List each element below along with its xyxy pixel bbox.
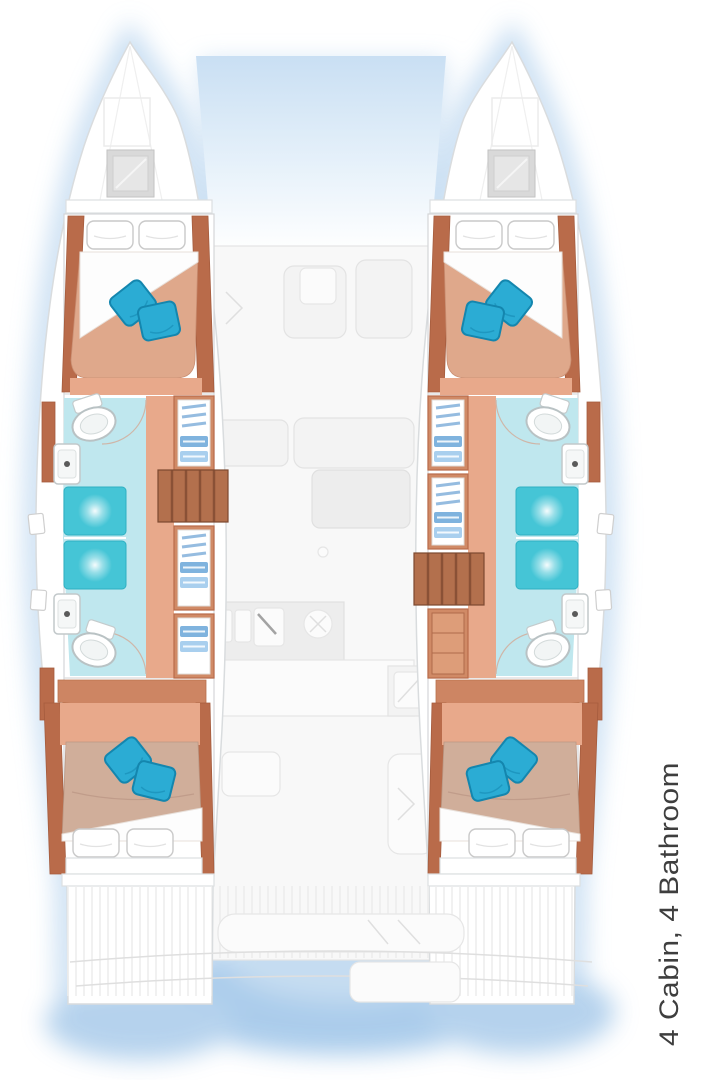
pillow-icon xyxy=(73,829,119,857)
bed-foot xyxy=(440,858,576,874)
deck-hatch-icon xyxy=(488,150,535,197)
hull-window xyxy=(30,590,46,611)
cockpit-bench-icon xyxy=(218,914,464,952)
shower-icon xyxy=(516,541,578,589)
stove-icon xyxy=(254,608,284,646)
bed-foot xyxy=(66,858,202,874)
corridor xyxy=(468,396,496,678)
corridor xyxy=(146,396,174,678)
washbasin-icon xyxy=(562,444,588,484)
washbasin-icon xyxy=(562,594,588,634)
pillow-icon xyxy=(139,221,185,249)
deck-band xyxy=(62,874,214,886)
cabin-floor xyxy=(70,378,202,395)
deck-band xyxy=(66,200,212,213)
forward-cockpit-table xyxy=(300,268,336,304)
bridge-deck xyxy=(212,246,434,960)
hull-window xyxy=(595,589,611,610)
pillow-icon xyxy=(523,829,569,857)
hull-window xyxy=(28,513,45,534)
mast-step xyxy=(318,547,328,557)
vanity-trim xyxy=(42,402,55,482)
vanity-trim xyxy=(587,402,600,482)
pillow-icon xyxy=(469,829,515,857)
galley-counter-front xyxy=(214,660,414,716)
plan-caption: 4 Cabin, 4 Bathroom xyxy=(654,762,684,1046)
pillow-icon xyxy=(127,829,173,857)
cabin-floor xyxy=(440,378,572,395)
foredeck-trampoline xyxy=(196,56,446,252)
deck-hatch-icon xyxy=(107,150,154,197)
swim-platform xyxy=(350,962,460,1002)
stairs-icon xyxy=(414,553,484,605)
shower-icon xyxy=(64,541,126,589)
washbasin-icon xyxy=(54,444,80,484)
hull-window xyxy=(597,513,614,534)
decor-pillow-icon xyxy=(137,300,181,341)
decor-pillow-icon xyxy=(461,300,505,341)
stairs-icon xyxy=(158,470,228,522)
pillow-icon xyxy=(87,221,133,249)
washbasin-icon xyxy=(54,594,80,634)
pillow-icon xyxy=(456,221,502,249)
deck-band xyxy=(428,874,580,886)
shower-icon xyxy=(516,487,578,535)
burner-icon xyxy=(304,610,332,638)
pillow-icon xyxy=(508,221,554,249)
floor-plan-page: 4 Cabin, 4 Bathroom xyxy=(0,0,720,1080)
catamaran-floor-plan: 4 Cabin, 4 Bathroom xyxy=(0,0,720,1080)
deck-band xyxy=(430,200,576,213)
cockpit-locker xyxy=(222,752,280,796)
shower-icon xyxy=(64,487,126,535)
salon-table xyxy=(312,470,410,528)
